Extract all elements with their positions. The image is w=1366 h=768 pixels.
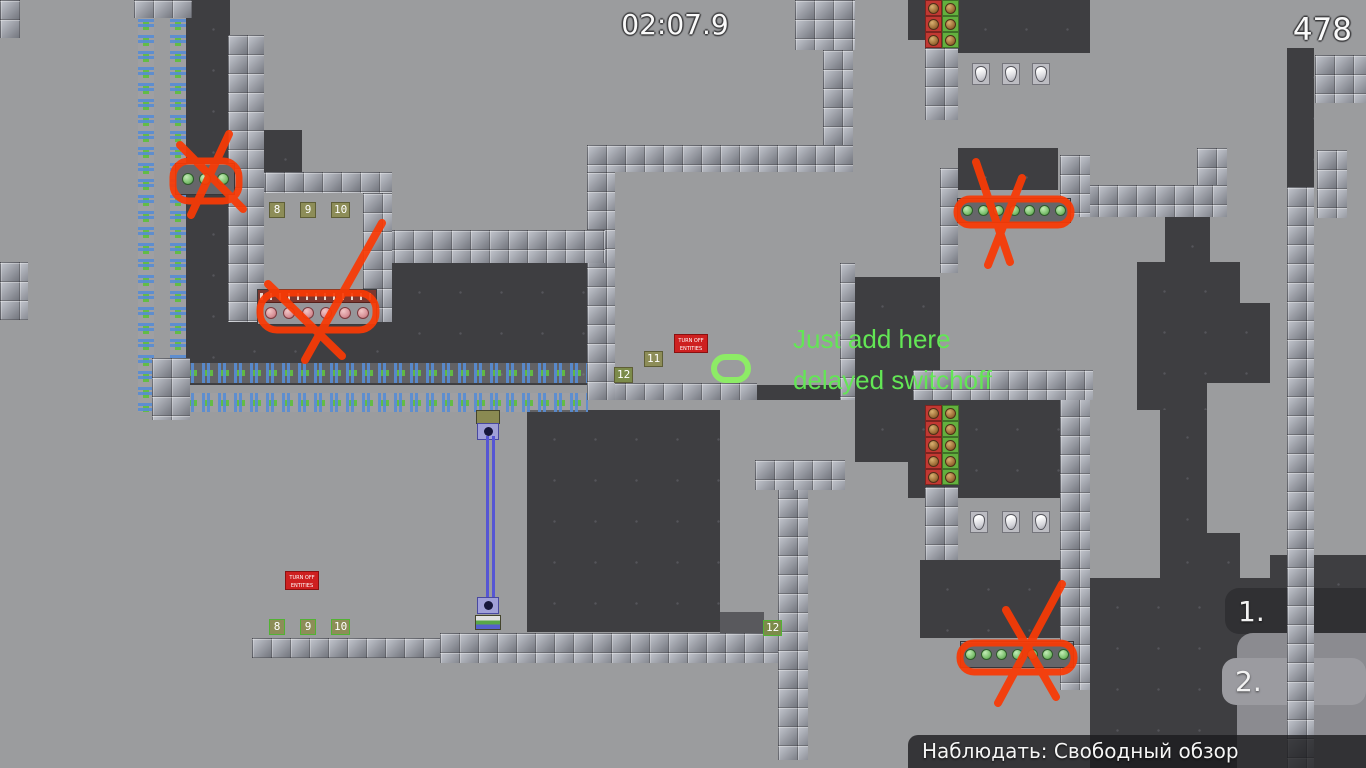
annotation-note-line1: Just add here bbox=[793, 326, 951, 352]
brick-wall bbox=[1317, 150, 1347, 218]
brick-wall bbox=[0, 0, 20, 38]
brick-wall bbox=[755, 460, 845, 490]
brick-wall bbox=[246, 172, 392, 193]
brick-wall bbox=[1197, 148, 1227, 188]
creature-tile-red bbox=[925, 405, 942, 421]
green-button-icon bbox=[996, 649, 1007, 660]
brick-wall bbox=[375, 230, 605, 263]
green-button-icon bbox=[199, 173, 211, 185]
brick-wall bbox=[587, 172, 615, 400]
green-button-icon bbox=[962, 205, 973, 216]
dark-cave bbox=[1165, 217, 1210, 267]
turn-off-entities-sign: TURN OFF ENTITIES bbox=[285, 571, 319, 590]
sign-line: ENTITIES bbox=[286, 583, 318, 591]
brick-wall bbox=[925, 48, 958, 120]
button-panel-7-bottom[interactable] bbox=[960, 641, 1074, 668]
green-button-icon bbox=[1039, 205, 1050, 216]
conveyor-belt[interactable] bbox=[185, 393, 588, 412]
green-highlight-oval bbox=[711, 354, 751, 383]
switch-chip-12b[interactable]: 12 bbox=[763, 620, 782, 636]
green-button-icon bbox=[981, 649, 992, 660]
sign-line: ENTITIES bbox=[675, 346, 707, 354]
shield-icon[interactable] bbox=[1002, 63, 1020, 85]
switch-chip-12[interactable]: 12 bbox=[614, 367, 633, 383]
score-counter: 478 bbox=[1232, 12, 1352, 48]
shield-icon[interactable] bbox=[972, 63, 990, 85]
conveyor-belt[interactable] bbox=[138, 18, 154, 412]
switch-chip-10b[interactable]: 10 bbox=[331, 619, 350, 635]
brick-wall bbox=[587, 145, 853, 172]
green-button-icon bbox=[1012, 649, 1023, 660]
pink-button-icon bbox=[302, 307, 314, 319]
dark-cave bbox=[908, 0, 925, 40]
dark-cave bbox=[527, 410, 720, 632]
creature-tile-green bbox=[942, 437, 959, 453]
switch-chip-10[interactable]: 10 bbox=[331, 202, 350, 218]
game-viewport: 1. 2. bbox=[0, 0, 1366, 768]
creature-tile-green bbox=[942, 453, 959, 469]
green-button-icon bbox=[1055, 205, 1066, 216]
dark-cave bbox=[720, 612, 764, 633]
sign-line: TURN OFF bbox=[286, 575, 318, 583]
annotation-note-line2: delayed switchoff bbox=[793, 367, 992, 393]
pink-button-icon bbox=[283, 307, 295, 319]
creature-tile-green bbox=[942, 0, 959, 16]
timer-display: 02:07.9 bbox=[575, 8, 775, 41]
brick-wall bbox=[795, 0, 855, 50]
creature-tile-red bbox=[925, 0, 942, 16]
brick-wall bbox=[152, 358, 190, 420]
switch-chip-9[interactable]: 9 bbox=[300, 202, 316, 218]
green-button-icon bbox=[217, 173, 229, 185]
pink-button-icon bbox=[265, 307, 277, 319]
green-button-icon bbox=[993, 205, 1004, 216]
creature-tile-green bbox=[942, 405, 959, 421]
button-panel-7-top[interactable] bbox=[957, 198, 1071, 223]
brick-wall bbox=[0, 262, 28, 320]
dark-cave bbox=[1137, 262, 1240, 310]
elevator-sign bbox=[476, 410, 500, 424]
elevator-rope[interactable] bbox=[486, 436, 495, 602]
brick-wall bbox=[1287, 187, 1314, 768]
brick-wall bbox=[823, 50, 853, 147]
dark-cave bbox=[958, 148, 1058, 190]
creature-tile-red bbox=[925, 469, 942, 485]
counter-ticks bbox=[258, 290, 376, 303]
conveyor-belt[interactable] bbox=[185, 363, 588, 383]
shield-icon[interactable] bbox=[1032, 511, 1050, 533]
brick-wall bbox=[925, 487, 958, 560]
brick-wall bbox=[252, 638, 440, 658]
brick-wall bbox=[440, 633, 778, 663]
dark-cave bbox=[258, 130, 302, 174]
dark-cave bbox=[920, 560, 1060, 638]
turn-off-entities-sign: TURN OFF ENTITIES bbox=[674, 334, 708, 353]
green-button-icon bbox=[1009, 205, 1020, 216]
creature-tile-red bbox=[925, 437, 942, 453]
green-button-icon bbox=[1058, 649, 1069, 660]
shield-icon[interactable] bbox=[970, 511, 988, 533]
switch-chip-9b[interactable]: 9 bbox=[300, 619, 316, 635]
brick-wall bbox=[134, 0, 192, 18]
green-button-icon bbox=[978, 205, 989, 216]
brick-wall bbox=[778, 460, 808, 760]
shield-icon[interactable] bbox=[1032, 63, 1050, 85]
elevator-sign bbox=[475, 615, 501, 630]
brick-wall bbox=[940, 168, 958, 273]
green-button-icon bbox=[1042, 649, 1053, 660]
creature-tile-green bbox=[942, 469, 959, 485]
green-button-icon bbox=[965, 649, 976, 660]
green-button-icon bbox=[182, 173, 194, 185]
pink-button-icon bbox=[339, 307, 351, 319]
switch-chip-11[interactable]: 11 bbox=[644, 351, 663, 367]
creature-tile-green bbox=[942, 32, 959, 48]
dark-cave bbox=[1137, 303, 1270, 383]
switch-chip-8b[interactable]: 8 bbox=[269, 619, 285, 635]
green-button-icon bbox=[1024, 205, 1035, 216]
creature-tile-green bbox=[942, 16, 959, 32]
shield-icon[interactable] bbox=[1002, 511, 1020, 533]
dark-cave bbox=[1287, 48, 1314, 187]
dark-cave bbox=[1160, 533, 1240, 580]
rope-pulley-bottom[interactable] bbox=[477, 597, 499, 614]
button-panel-3[interactable] bbox=[175, 163, 235, 195]
green-button-icon bbox=[1027, 649, 1038, 660]
creature-tile-red bbox=[925, 421, 942, 437]
creature-tile-red bbox=[925, 453, 942, 469]
dark-cave bbox=[1160, 408, 1207, 538]
pink-button-icon bbox=[357, 307, 369, 319]
pink-button-strip[interactable] bbox=[257, 289, 377, 325]
creature-tile-red bbox=[925, 32, 942, 48]
switch-chip-8[interactable]: 8 bbox=[269, 202, 285, 218]
brick-wall bbox=[1315, 55, 1366, 103]
pink-button-icon bbox=[320, 307, 332, 319]
status-bar: Наблюдать: Свободный обзор bbox=[908, 735, 1366, 768]
creature-tile-red bbox=[925, 16, 942, 32]
sign-line: TURN OFF bbox=[675, 338, 707, 346]
dark-cave bbox=[1137, 380, 1207, 410]
creature-tile-green bbox=[942, 421, 959, 437]
dark-cave bbox=[958, 0, 1090, 53]
